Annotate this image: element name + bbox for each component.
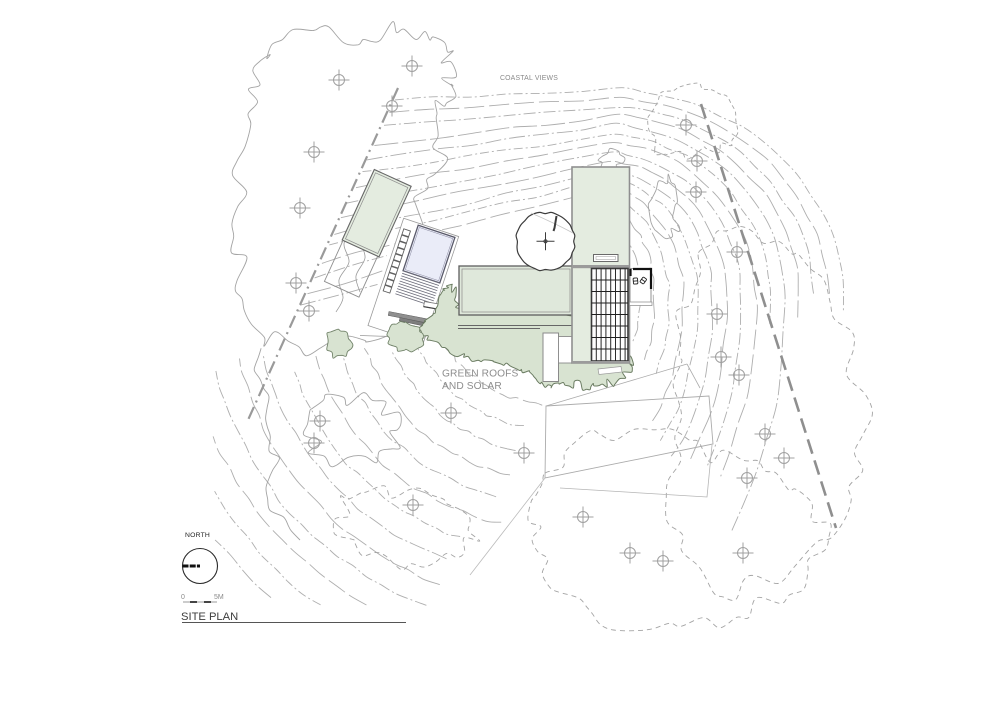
svg-text:SITE PLAN: SITE PLAN: [181, 611, 238, 623]
svg-text:0: 0: [181, 594, 185, 601]
svg-text:COASTAL VIEWS: COASTAL VIEWS: [500, 75, 558, 82]
svg-text:AND SOLAR: AND SOLAR: [442, 381, 502, 392]
svg-text:GREEN ROOFS: GREEN ROOFS: [442, 369, 518, 380]
svg-text:5M: 5M: [214, 594, 224, 601]
svg-text:NORTH: NORTH: [185, 532, 210, 539]
